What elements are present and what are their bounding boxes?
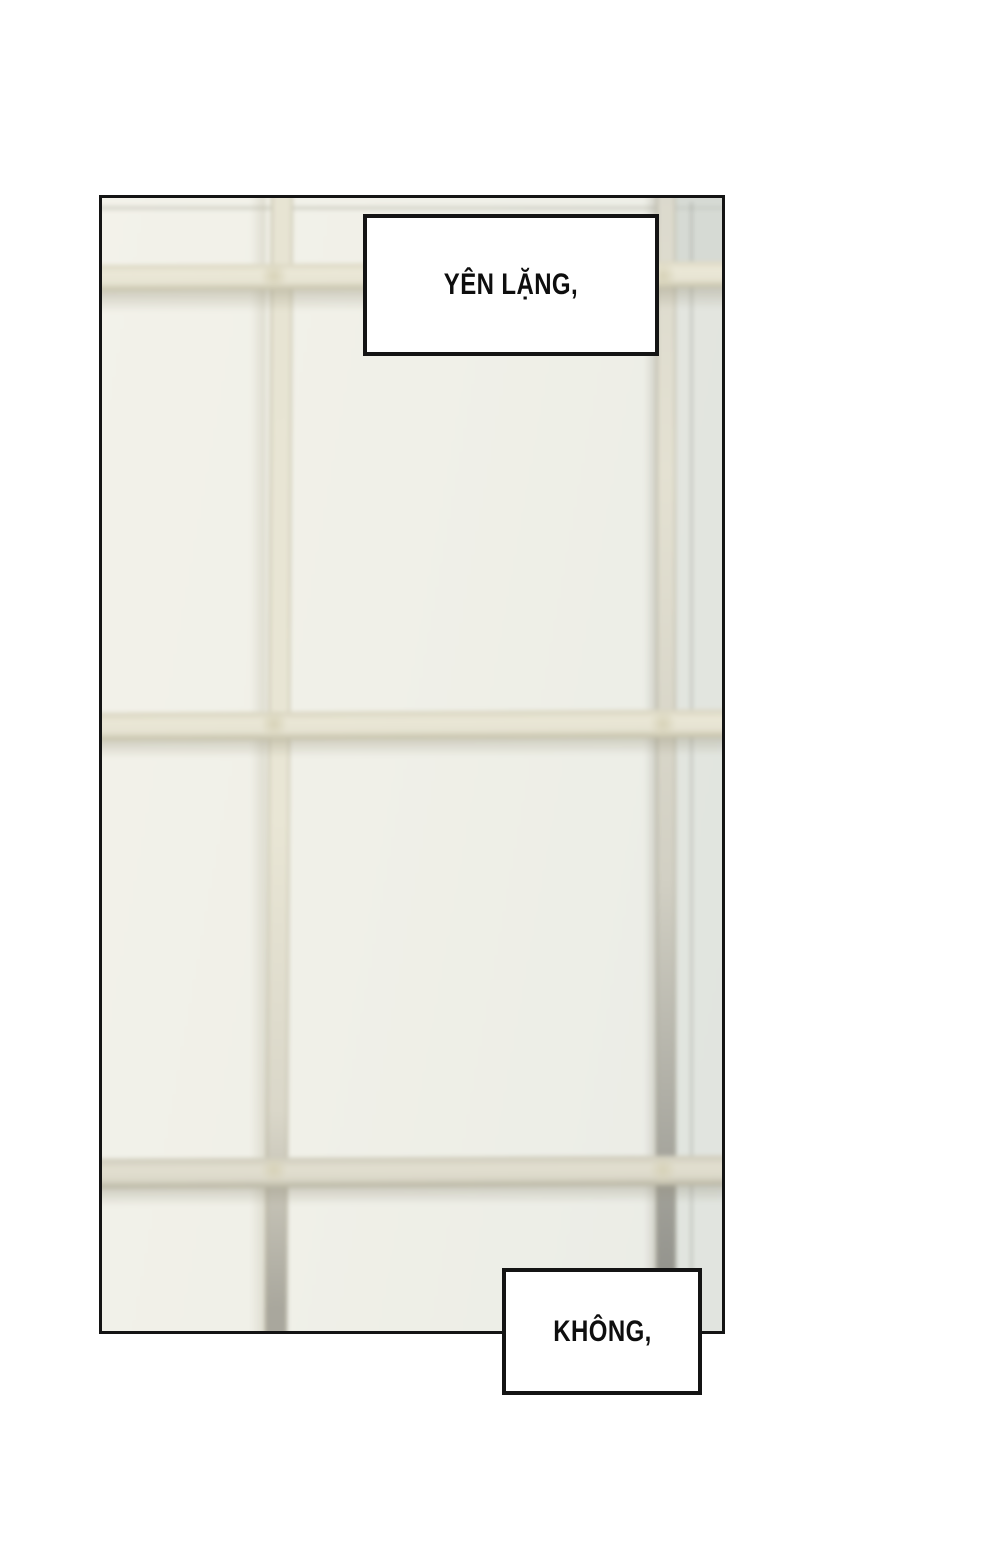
caption-box-top: YÊN LẶNG, <box>363 214 659 356</box>
muntin-shadow-horizontal-2 <box>99 737 725 758</box>
muntin-shadow-horizontal-3 <box>99 1185 725 1206</box>
window-photo <box>99 195 725 1334</box>
muntin-joint <box>260 1156 288 1184</box>
comic-page: YÊN LẶNG, KHÔNG, <box>0 0 1000 1567</box>
caption-text-bottom: KHÔNG, <box>553 1315 651 1349</box>
window-muntin-horizontal-2 <box>99 709 725 740</box>
window-muntin-horizontal-3 <box>99 1155 725 1188</box>
caption-box-bottom: KHÔNG, <box>502 1268 702 1395</box>
window-frame-top-line <box>99 206 725 210</box>
muntin-joint <box>649 710 677 738</box>
caption-text-top: YÊN LẶNG, <box>444 268 578 302</box>
muntin-joint <box>260 710 288 738</box>
muntin-joint <box>649 1156 677 1184</box>
muntin-joint <box>260 262 288 290</box>
comic-panel <box>99 195 725 1334</box>
